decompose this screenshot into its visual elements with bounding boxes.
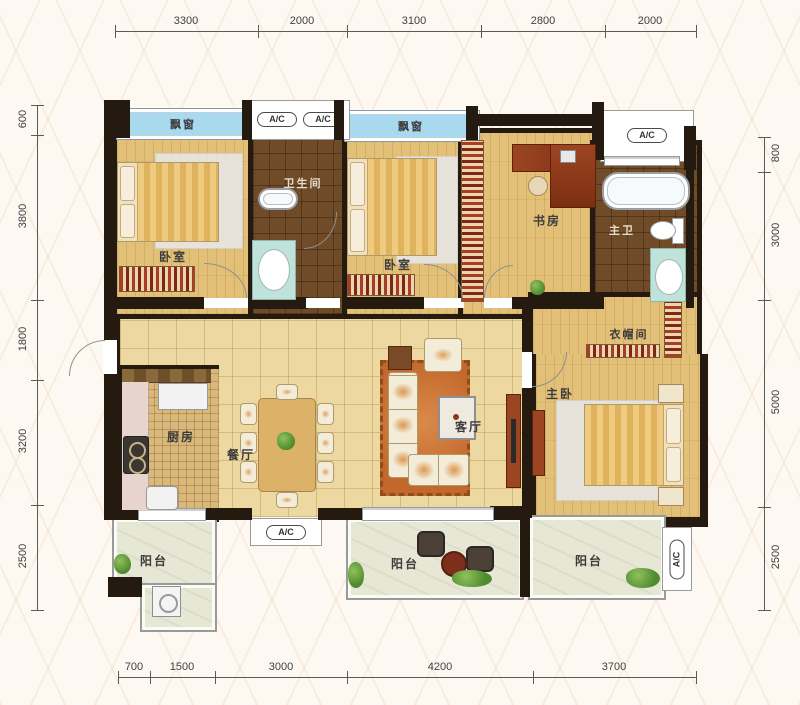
bathroom-tub — [258, 188, 298, 210]
wall — [684, 126, 696, 170]
living-label: 客厅 — [446, 418, 492, 435]
dim-bottom-2: 1500 — [152, 661, 212, 673]
study-label: 书房 — [525, 212, 569, 229]
dim-line-left — [37, 105, 38, 610]
cloakroom-rack-side — [664, 300, 682, 358]
dim-right-2: 3000 — [770, 207, 782, 263]
dim-line-right — [764, 137, 765, 610]
dining-centerpiece — [277, 432, 295, 450]
dim-tick — [605, 25, 606, 38]
balcony-middle-label: 阳台 — [382, 555, 428, 572]
dim-top-5: 2000 — [620, 15, 680, 27]
bay-window-2-label: 飘窗 — [386, 118, 436, 134]
living-sofa-bottom — [408, 454, 470, 486]
kitchen-sink — [146, 486, 178, 510]
door-master-bedroom — [522, 352, 532, 388]
wall — [104, 304, 116, 340]
dim-tick — [347, 25, 348, 38]
balcony-right-plant — [626, 568, 660, 588]
ac-platform-top-right: A/C — [600, 110, 694, 162]
master-bath-toilet — [650, 218, 684, 242]
master-nightstand-top — [658, 384, 684, 403]
dim-top-2: 2000 — [272, 15, 332, 27]
window-balcony-middle — [362, 507, 494, 521]
wall — [204, 508, 252, 520]
balcony-left-plant — [114, 554, 131, 574]
balcony-right-label: 阳台 — [566, 552, 612, 569]
washing-machine — [152, 586, 181, 617]
dim-bottom-4: 4200 — [410, 661, 470, 673]
bedroom-2-mat — [347, 274, 415, 296]
dim-bottom-5: 3700 — [584, 661, 644, 673]
kitchen-cabinet-top — [122, 369, 211, 383]
dim-tick — [31, 505, 44, 506]
dim-bottom-3: 3000 — [251, 661, 311, 673]
master-nightstand-bottom — [658, 487, 684, 506]
dining-chair — [317, 432, 334, 454]
ac-unit-label: A/C — [627, 128, 667, 143]
balcony-chair — [417, 531, 445, 557]
cloakroom-rack — [586, 344, 660, 358]
dim-tick — [696, 671, 697, 684]
dim-left-4: 3200 — [17, 413, 29, 469]
master-bath-label: 主卫 — [602, 222, 642, 238]
kitchen-fridge — [158, 383, 208, 410]
bedroom-2-label: 卧室 — [373, 256, 423, 273]
balcony-middle — [346, 517, 524, 600]
wall — [522, 297, 532, 354]
master-bedroom-bed — [584, 404, 684, 486]
bay-window-1-label: 飘窗 — [158, 116, 208, 132]
wall — [242, 100, 252, 140]
dining-chair — [276, 492, 298, 508]
dim-tick — [481, 25, 482, 38]
dim-top-3: 3100 — [384, 15, 444, 27]
master-bedroom-label: 主卧 — [540, 385, 580, 402]
balcony-chair — [466, 546, 494, 572]
master-dresser — [532, 410, 545, 476]
wall — [520, 515, 530, 597]
dim-tick — [758, 610, 771, 611]
bedroom-2-bed — [347, 158, 437, 256]
dim-tick — [215, 671, 216, 684]
dim-tick — [258, 25, 259, 38]
bedroom-1-mat — [119, 266, 195, 292]
kitchen-stove — [123, 436, 149, 474]
balcony-middle-plant — [452, 570, 492, 587]
dim-left-3: 1800 — [17, 311, 29, 367]
dim-tick — [115, 25, 116, 38]
ac-platform-bottom: A/C — [250, 518, 322, 546]
window-master-bath-top — [604, 156, 680, 166]
bathroom-sink — [252, 240, 296, 300]
study-chair — [528, 176, 548, 196]
dim-line-bottom — [118, 677, 696, 678]
wall — [112, 297, 204, 309]
wall — [468, 114, 604, 126]
wall — [104, 136, 116, 304]
dim-tick — [31, 610, 44, 611]
door-bedroom-2 — [424, 298, 464, 308]
bedroom-1-bed — [117, 162, 219, 242]
master-bath-tub — [602, 172, 690, 210]
bathroom-label: 卫生间 — [268, 175, 338, 191]
door-bedroom-1 — [204, 298, 248, 308]
dim-tick — [696, 25, 697, 38]
study-wardrobe — [461, 140, 484, 302]
wall — [104, 100, 130, 138]
cloakroom-label: 衣帽间 — [596, 326, 662, 342]
dining-chair — [276, 384, 298, 400]
dim-right-3: 5000 — [770, 374, 782, 430]
wall — [334, 100, 344, 140]
dim-line-top — [115, 31, 696, 32]
study-plant — [530, 280, 545, 295]
balcony-middle-plant — [348, 562, 364, 588]
floorplan-canvas: 3300 2000 3100 2800 2000 700 1500 3000 4… — [0, 0, 800, 705]
balcony-left-label: 阳台 — [131, 552, 177, 569]
wall — [318, 508, 364, 520]
dim-tick — [31, 135, 44, 136]
dim-left-1: 600 — [17, 91, 29, 147]
dining-label: 餐厅 — [218, 446, 264, 463]
ac-unit-label: A/C — [266, 525, 306, 540]
kitchen-label: 厨房 — [158, 428, 204, 445]
bedroom-1-label: 卧室 — [148, 248, 198, 265]
dim-tick — [347, 671, 348, 684]
living-tv-cabinet — [506, 394, 521, 488]
dim-right-4: 2500 — [770, 529, 782, 585]
dining-chair — [240, 403, 257, 425]
living-side-table — [388, 346, 412, 370]
wall — [108, 577, 142, 597]
wall — [522, 388, 532, 518]
living-armchair — [424, 338, 462, 372]
dining-chair — [240, 461, 257, 483]
door-bathroom — [306, 298, 340, 308]
master-bath-sink — [650, 248, 686, 302]
dim-tick — [31, 380, 44, 381]
ac-platform-bottom-right: A/C — [662, 527, 692, 591]
study-laptop — [560, 150, 576, 163]
dim-left-5: 2500 — [17, 528, 29, 584]
dim-left-2: 3800 — [17, 188, 29, 244]
dining-chair — [317, 461, 334, 483]
door-entry-arc — [69, 340, 105, 376]
wall — [104, 374, 116, 520]
ac-unit-label: A/C — [670, 540, 685, 580]
door-entry — [103, 340, 117, 374]
wall — [342, 297, 424, 309]
ac-unit-label: A/C — [257, 112, 297, 127]
dim-top-1: 3300 — [156, 15, 216, 27]
dim-right-1: 800 — [770, 125, 782, 181]
dim-tick — [533, 671, 534, 684]
dim-tick — [758, 300, 771, 301]
dining-chair — [317, 403, 334, 425]
dim-top-4: 2800 — [513, 15, 573, 27]
door-study — [484, 298, 512, 308]
dim-tick — [31, 105, 44, 106]
dim-tick — [31, 300, 44, 301]
dim-tick — [758, 507, 771, 508]
